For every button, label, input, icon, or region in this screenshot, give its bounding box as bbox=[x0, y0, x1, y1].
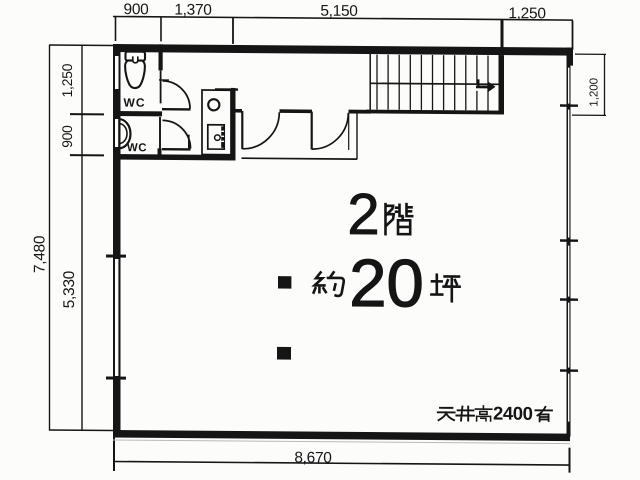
svg-text:900: 900 bbox=[124, 1, 150, 18]
svg-text:8,670: 8,670 bbox=[294, 449, 332, 466]
svg-text:2: 2 bbox=[347, 182, 379, 247]
svg-text:1,250: 1,250 bbox=[508, 5, 546, 22]
svg-text:900: 900 bbox=[59, 125, 75, 148]
svg-text:5,150: 5,150 bbox=[320, 3, 358, 20]
svg-text:WC: WC bbox=[127, 142, 147, 154]
svg-text:2400: 2400 bbox=[493, 402, 533, 423]
svg-text:20: 20 bbox=[349, 246, 424, 322]
svg-text:WC: WC bbox=[124, 96, 146, 110]
svg-text:7,480: 7,480 bbox=[32, 235, 49, 273]
svg-text:1,370: 1,370 bbox=[174, 1, 212, 18]
svg-text:5,330: 5,330 bbox=[61, 270, 78, 308]
svg-text:1,250: 1,250 bbox=[59, 63, 75, 97]
svg-text:1,200: 1,200 bbox=[589, 78, 601, 107]
